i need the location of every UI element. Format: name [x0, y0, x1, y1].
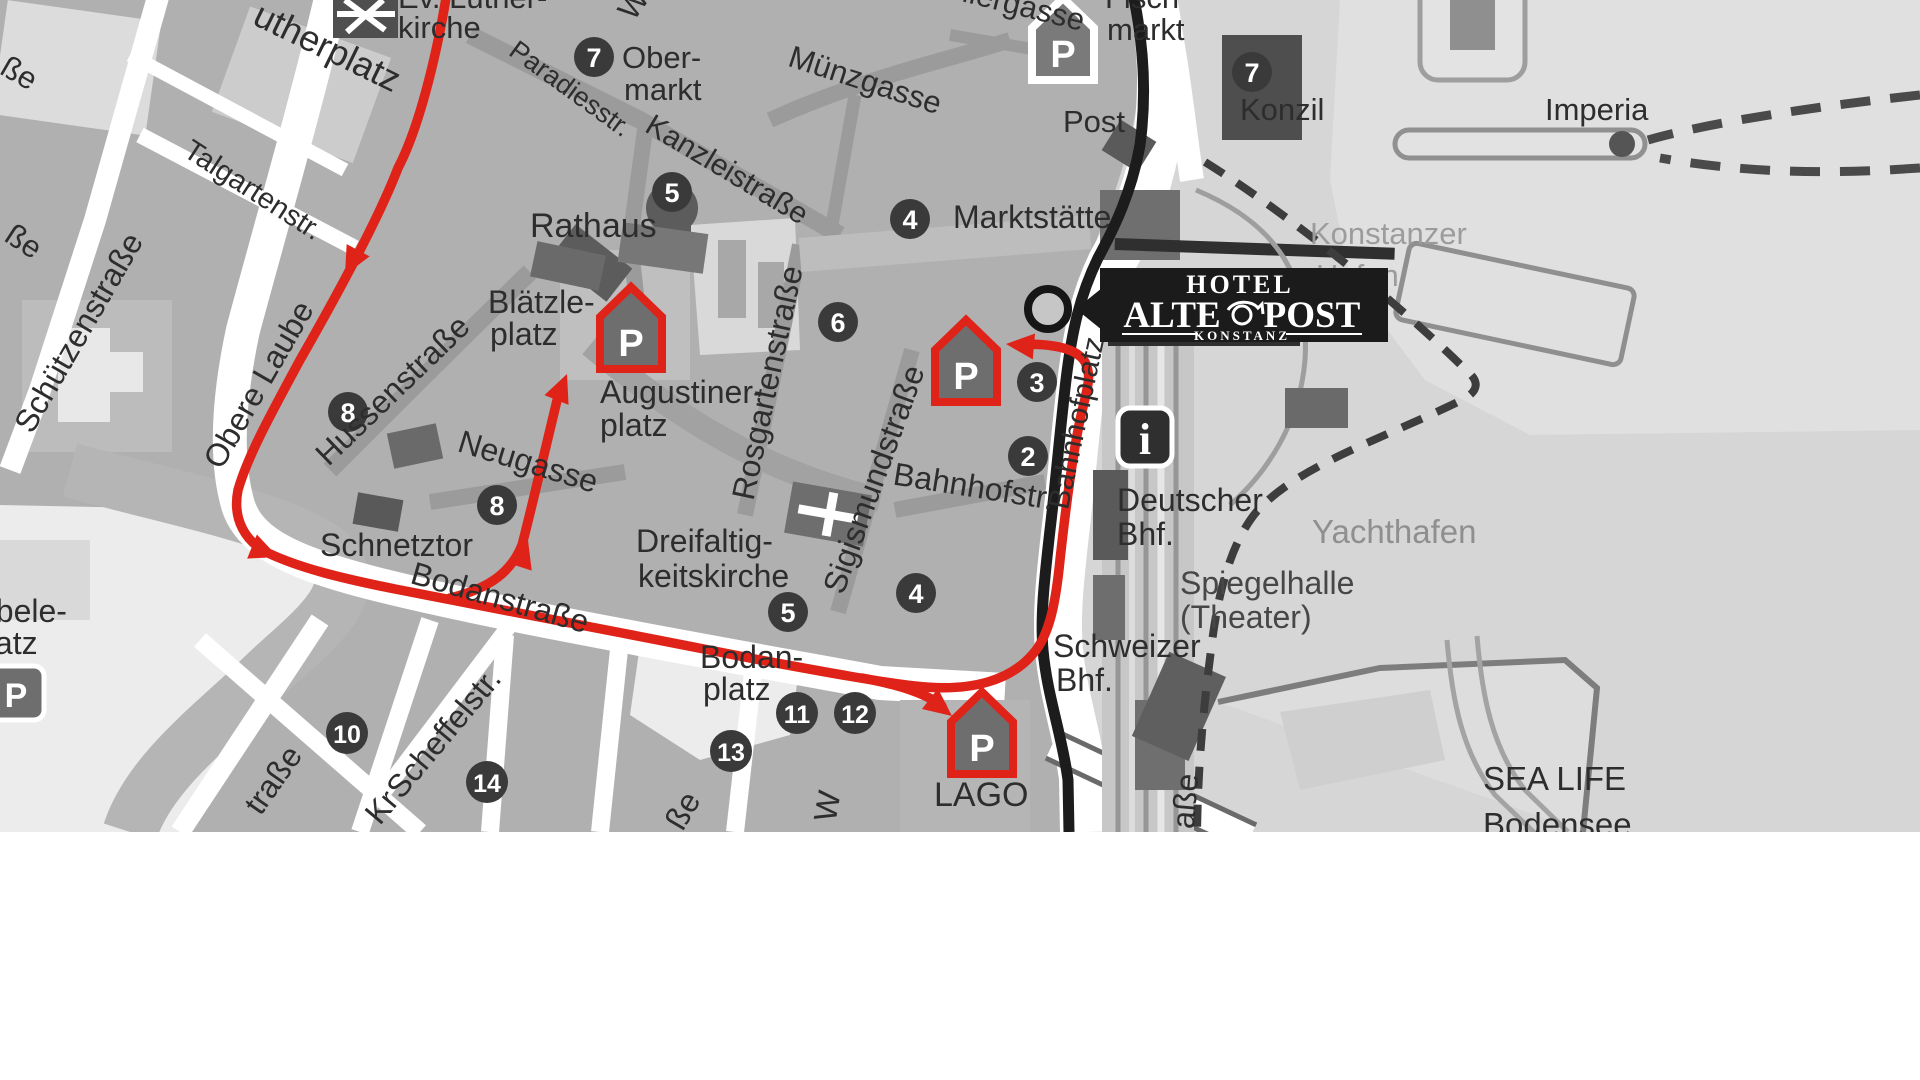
marker-7-obermarkt: 7: [574, 37, 614, 77]
svg-text:6: 6: [830, 308, 845, 338]
svg-text:8: 8: [489, 491, 504, 521]
label-obermarkt-2: markt: [624, 72, 702, 107]
info-i-letter: i: [1139, 415, 1151, 464]
label-schweizer-bhf-1: Schweizer: [1053, 628, 1201, 664]
svg-text:12: 12: [841, 701, 869, 729]
label-lago: LAGO: [934, 776, 1028, 814]
parking-p-letter: P: [5, 677, 28, 715]
label-bodanplatz-1: Bodan-: [700, 639, 803, 675]
marker-12: 12: [834, 692, 876, 734]
marker-2: 2: [1008, 436, 1048, 476]
svg-text:5: 5: [780, 598, 795, 628]
label-deutscher-bhf-2: Bhf.: [1117, 516, 1174, 552]
svg-text:2: 2: [1020, 442, 1035, 472]
parking-p-letter: P: [969, 728, 994, 770]
marker-11: 11: [776, 692, 818, 734]
marker-3: 3: [1017, 362, 1057, 402]
konstanz-city-map: P P P P P i 7 5 4 6 8 8 3 2 7 5 4 10 14 …: [0, 0, 1920, 832]
label-fragment-asse: aße: [1165, 772, 1206, 830]
imperia-statue-dot: [1609, 131, 1635, 157]
label-yachthafen: Yachthafen: [1312, 513, 1477, 550]
marker-6-rosgartenstrasse: 6: [818, 302, 858, 342]
svg-text:4: 4: [902, 205, 917, 235]
label-marktstaette: Marktstätte: [953, 199, 1111, 235]
imperia-pier: [1395, 130, 1645, 158]
parking-doebele-icon: P: [0, 666, 44, 720]
svg-text:7: 7: [1244, 58, 1259, 88]
label-fischmarkt-2: markt: [1107, 12, 1185, 47]
parking-p-letter: P: [953, 356, 978, 398]
svg-text:14: 14: [473, 770, 501, 798]
label-bodanplatz-2: platz: [703, 671, 771, 707]
bottom-white-strip: [0, 832, 1920, 1080]
marker-13: 13: [710, 730, 752, 772]
logo-konstanz-text: KONSTANZ: [1194, 328, 1290, 343]
label-post: Post: [1063, 104, 1125, 139]
label-rathaus: Rathaus: [530, 207, 657, 245]
label-spiegelhalle-1: Spiegelhalle: [1180, 565, 1354, 601]
svg-text:4: 4: [908, 579, 923, 609]
marker-4-marktstaette: 4: [890, 199, 930, 239]
label-schweizer-bhf-2: Bhf.: [1056, 662, 1113, 698]
parking-p-letter: P: [618, 323, 643, 365]
label-dreifaltigkeitskirche-2: keitskirche: [638, 558, 789, 594]
label-konzil: Konzil: [1240, 92, 1324, 127]
label-dreifaltigkeitskirche-1: Dreifaltig-: [636, 523, 773, 559]
marker-5-dreifaltigkeitskirche: 5: [768, 592, 808, 632]
hotel-alte-post-logo: HOTEL ALTE POST KONSTANZ: [1100, 268, 1388, 343]
svg-text:10: 10: [333, 721, 361, 749]
tourist-info-icon: i: [1118, 408, 1172, 466]
parking-p-letter: P: [1050, 34, 1075, 76]
svg-text:11: 11: [784, 701, 811, 729]
marker-5-rathaus: 5: [652, 172, 692, 212]
hotel-alte-post-directions-map: P P P P P i 7 5 4 6 8 8 3 2 7 5 4 10 14 …: [0, 0, 1920, 1080]
marker-8-neugasse: 8: [477, 485, 517, 525]
label-kirche: kirche: [398, 10, 481, 45]
marker-10: 10: [326, 712, 368, 754]
label-doebeleplatz-2: platz: [0, 625, 38, 661]
label-obermarkt-1: Ober-: [622, 40, 701, 75]
label-spiegelhalle-2: (Theater): [1180, 599, 1312, 635]
svg-text:13: 13: [717, 739, 745, 767]
label-doebeleplatz-1: öbele-: [0, 593, 67, 629]
label-sea-life-1: SEA LIFE: [1483, 760, 1626, 797]
label-konstanzer: Konstanzer: [1310, 216, 1467, 251]
hotel-location-circle: [1028, 289, 1068, 329]
svg-text:7: 7: [586, 43, 601, 73]
marker-7-konzil: 7: [1232, 52, 1272, 92]
label-imperia: Imperia: [1545, 92, 1649, 127]
svg-text:3: 3: [1029, 368, 1044, 398]
marker-4-sigismundstrasse: 4: [896, 573, 936, 613]
label-schnetztor: Schnetztor: [320, 527, 473, 563]
marker-14: 14: [466, 761, 508, 803]
label-augustinerplatz-1: Augustiner-: [600, 374, 764, 410]
label-blaetzleplatz-2: platz: [490, 316, 558, 352]
svg-text:5: 5: [664, 178, 679, 208]
label-augustinerplatz-2: platz: [600, 407, 668, 443]
label-deutscher-bhf-1: Deutscher: [1117, 482, 1263, 518]
label-blaetzleplatz-1: Blätzle-: [488, 284, 595, 320]
label-sea-life-2: Bodensee: [1483, 806, 1632, 832]
